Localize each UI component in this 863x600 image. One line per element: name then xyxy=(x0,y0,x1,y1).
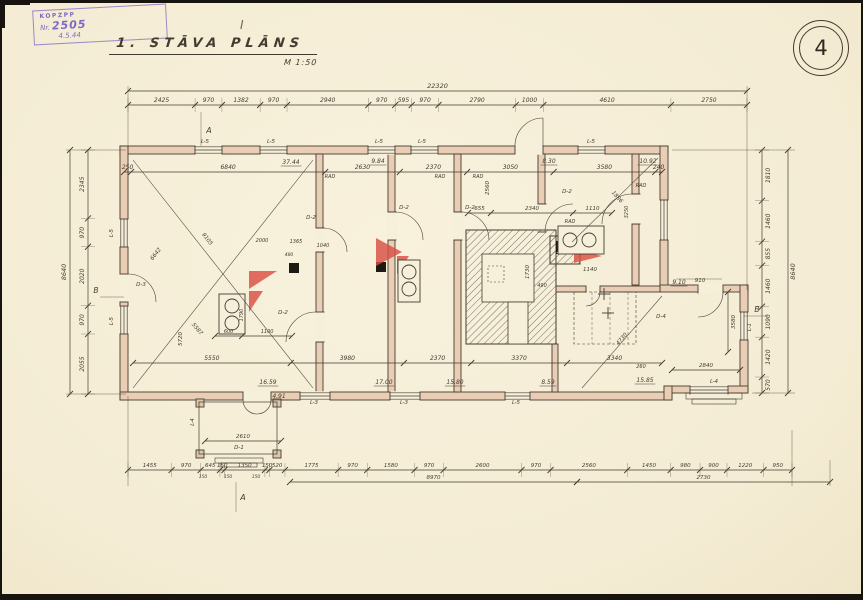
scan-edge-top xyxy=(0,0,863,3)
svg-text:980: 980 xyxy=(680,463,691,469)
svg-text:3580: 3580 xyxy=(597,164,612,171)
svg-text:3370: 3370 xyxy=(512,355,527,362)
svg-text:1420: 1420 xyxy=(765,349,772,364)
drawing-title: 1. STĀVA PLĀNS xyxy=(109,36,319,55)
svg-text:L-5: L-5 xyxy=(201,139,210,145)
svg-text:645: 645 xyxy=(205,463,216,469)
svg-text:150: 150 xyxy=(224,474,233,480)
svg-text:150: 150 xyxy=(252,474,261,480)
sheet-number-circle: 4 xyxy=(793,20,849,76)
svg-text:970: 970 xyxy=(79,314,86,326)
svg-text:1790: 1790 xyxy=(239,309,245,322)
svg-text:22320: 22320 xyxy=(427,82,448,90)
svg-text:L-5: L-5 xyxy=(267,139,276,145)
svg-text:2750: 2750 xyxy=(701,97,716,104)
svg-text:970: 970 xyxy=(419,97,431,104)
svg-text:1090: 1090 xyxy=(765,314,772,329)
svg-text:15.80: 15.80 xyxy=(446,379,463,386)
svg-text:L-3: L-3 xyxy=(310,400,319,406)
svg-text:D-2: D-2 xyxy=(278,310,288,316)
svg-text:D-2: D-2 xyxy=(465,205,475,211)
svg-text:570: 570 xyxy=(765,379,772,391)
svg-text:RAD: RAD xyxy=(565,219,576,225)
svg-text:2000: 2000 xyxy=(256,238,269,244)
svg-text:2940: 2940 xyxy=(320,97,335,104)
svg-text:2345: 2345 xyxy=(79,176,86,191)
svg-text:855: 855 xyxy=(765,248,772,260)
svg-text:2610: 2610 xyxy=(236,434,250,440)
stamp-number: 2505 xyxy=(52,18,87,33)
svg-text:D-2: D-2 xyxy=(399,205,409,211)
fixtures-layer xyxy=(133,158,742,467)
svg-text:1580: 1580 xyxy=(384,463,398,469)
svg-text:L-5: L-5 xyxy=(587,139,596,145)
svg-text:2600: 2600 xyxy=(476,463,490,469)
svg-text:1810: 1810 xyxy=(765,168,772,183)
svg-text:RAD: RAD xyxy=(636,183,647,189)
svg-text:1000: 1000 xyxy=(522,97,537,104)
svg-text:D-3: D-3 xyxy=(136,282,146,288)
svg-text:970: 970 xyxy=(424,463,435,469)
svg-text:1140: 1140 xyxy=(583,267,597,273)
svg-text:1110: 1110 xyxy=(586,206,600,212)
svg-text:6840: 6840 xyxy=(220,164,235,171)
svg-text:2370: 2370 xyxy=(430,355,445,362)
svg-text:520: 520 xyxy=(272,463,283,469)
svg-text:1350: 1350 xyxy=(238,463,252,469)
pencil-mark: I xyxy=(240,18,244,32)
svg-text:900: 900 xyxy=(708,463,719,469)
svg-text:L-3: L-3 xyxy=(400,400,409,406)
svg-text:1040: 1040 xyxy=(317,243,330,249)
svg-text:D-2: D-2 xyxy=(562,189,572,195)
svg-text:16.59: 16.59 xyxy=(259,379,276,386)
svg-text:B: B xyxy=(754,305,759,314)
svg-text:D-4: D-4 xyxy=(656,314,666,320)
scan-edge-left xyxy=(0,0,2,600)
svg-text:600: 600 xyxy=(224,329,234,335)
svg-text:1775: 1775 xyxy=(305,463,319,469)
svg-text:910: 910 xyxy=(695,278,706,284)
svg-text:3580: 3580 xyxy=(731,315,737,329)
svg-text:15.85: 15.85 xyxy=(636,377,653,384)
svg-text:1220: 1220 xyxy=(738,463,752,469)
svg-text:150: 150 xyxy=(199,474,208,480)
svg-text:RAD: RAD xyxy=(325,174,336,180)
svg-text:1460: 1460 xyxy=(765,213,772,228)
svg-text:L-5: L-5 xyxy=(512,400,521,406)
svg-text:3980: 3980 xyxy=(340,355,355,362)
svg-text:1460: 1460 xyxy=(765,278,772,293)
svg-text:5550: 5550 xyxy=(204,355,219,362)
svg-text:5587: 5587 xyxy=(190,322,204,337)
svg-text:260: 260 xyxy=(636,364,646,370)
svg-text:L-5: L-5 xyxy=(109,316,115,325)
svg-text:1450: 1450 xyxy=(642,463,656,469)
svg-text:250: 250 xyxy=(122,164,134,171)
svg-text:970: 970 xyxy=(376,97,388,104)
svg-text:2560: 2560 xyxy=(582,463,596,469)
svg-text:490: 490 xyxy=(537,283,547,289)
svg-text:B: B xyxy=(93,286,98,295)
svg-text:2370: 2370 xyxy=(426,164,441,171)
svg-text:D-1: D-1 xyxy=(234,445,244,451)
svg-text:970: 970 xyxy=(79,227,86,239)
svg-text:RAD: RAD xyxy=(435,174,446,180)
scan-edge-bottom xyxy=(0,594,863,600)
drawing-sheet: KOPZPP Nr. 2505 4.5.44 I 1. STĀVA PLĀNS … xyxy=(0,0,863,600)
svg-text:A: A xyxy=(205,126,211,135)
svg-text:9.84: 9.84 xyxy=(371,158,385,165)
svg-text:37.44: 37.44 xyxy=(282,159,299,166)
svg-text:970: 970 xyxy=(268,97,280,104)
svg-text:8.59: 8.59 xyxy=(541,379,555,386)
svg-text:9.10: 9.10 xyxy=(672,279,686,286)
svg-text:480: 480 xyxy=(285,252,294,258)
svg-text:3050: 3050 xyxy=(503,164,518,171)
svg-text:970: 970 xyxy=(531,463,542,469)
svg-text:4730: 4730 xyxy=(615,332,629,347)
svg-text:1100: 1100 xyxy=(261,329,274,335)
svg-text:655: 655 xyxy=(474,206,485,212)
svg-text:950: 950 xyxy=(773,463,784,469)
svg-text:L-4: L-4 xyxy=(710,379,719,385)
svg-text:2840: 2840 xyxy=(699,363,713,369)
svg-text:5720: 5720 xyxy=(178,332,184,346)
svg-text:L-5: L-5 xyxy=(375,139,384,145)
svg-text:2560: 2560 xyxy=(485,181,491,195)
svg-text:D-2: D-2 xyxy=(306,215,316,221)
svg-text:595: 595 xyxy=(398,97,410,104)
svg-text:L-5: L-5 xyxy=(418,139,427,145)
floor-plan-canvas: 2232024259701382970294097059597027901000… xyxy=(0,0,863,600)
svg-text:2425: 2425 xyxy=(154,97,169,104)
svg-text:4.91: 4.91 xyxy=(272,393,285,400)
svg-text:2790: 2790 xyxy=(469,97,484,104)
svg-text:3250: 3250 xyxy=(624,206,630,219)
scan-corner-mark2 xyxy=(0,0,5,28)
svg-text:970: 970 xyxy=(181,463,192,469)
svg-text:10.92: 10.92 xyxy=(639,158,656,165)
svg-text:6642: 6642 xyxy=(150,247,164,262)
svg-text:2730: 2730 xyxy=(697,475,711,481)
svg-text:4610: 4610 xyxy=(599,97,614,104)
svg-text:150: 150 xyxy=(217,463,228,469)
svg-text:17.00: 17.00 xyxy=(375,379,392,386)
svg-text:2055: 2055 xyxy=(79,356,86,371)
svg-text:1730: 1730 xyxy=(525,265,531,279)
svg-text:2630: 2630 xyxy=(355,164,370,171)
svg-text:970: 970 xyxy=(203,97,215,104)
drawing-scale: M 1:50 xyxy=(284,58,318,67)
svg-text:1365: 1365 xyxy=(290,239,303,245)
svg-text:9105: 9105 xyxy=(200,232,214,247)
svg-text:L-4: L-4 xyxy=(190,418,196,425)
svg-text:A: A xyxy=(239,493,245,502)
svg-text:8640: 8640 xyxy=(60,264,68,281)
svg-text:2020: 2020 xyxy=(79,268,86,283)
svg-text:3340: 3340 xyxy=(607,355,622,362)
svg-text:1455: 1455 xyxy=(143,463,157,469)
svg-text:970: 970 xyxy=(347,463,358,469)
svg-text:8640: 8640 xyxy=(789,263,797,280)
svg-text:8970: 8970 xyxy=(427,475,441,481)
svg-text:8.30: 8.30 xyxy=(542,158,556,165)
svg-text:L-1: L-1 xyxy=(747,323,753,331)
svg-text:RAD: RAD xyxy=(473,174,484,180)
svg-text:L-5: L-5 xyxy=(109,228,115,237)
svg-text:1382: 1382 xyxy=(233,97,248,104)
svg-text:2340: 2340 xyxy=(525,206,539,212)
sheet-number: 4 xyxy=(799,26,843,70)
